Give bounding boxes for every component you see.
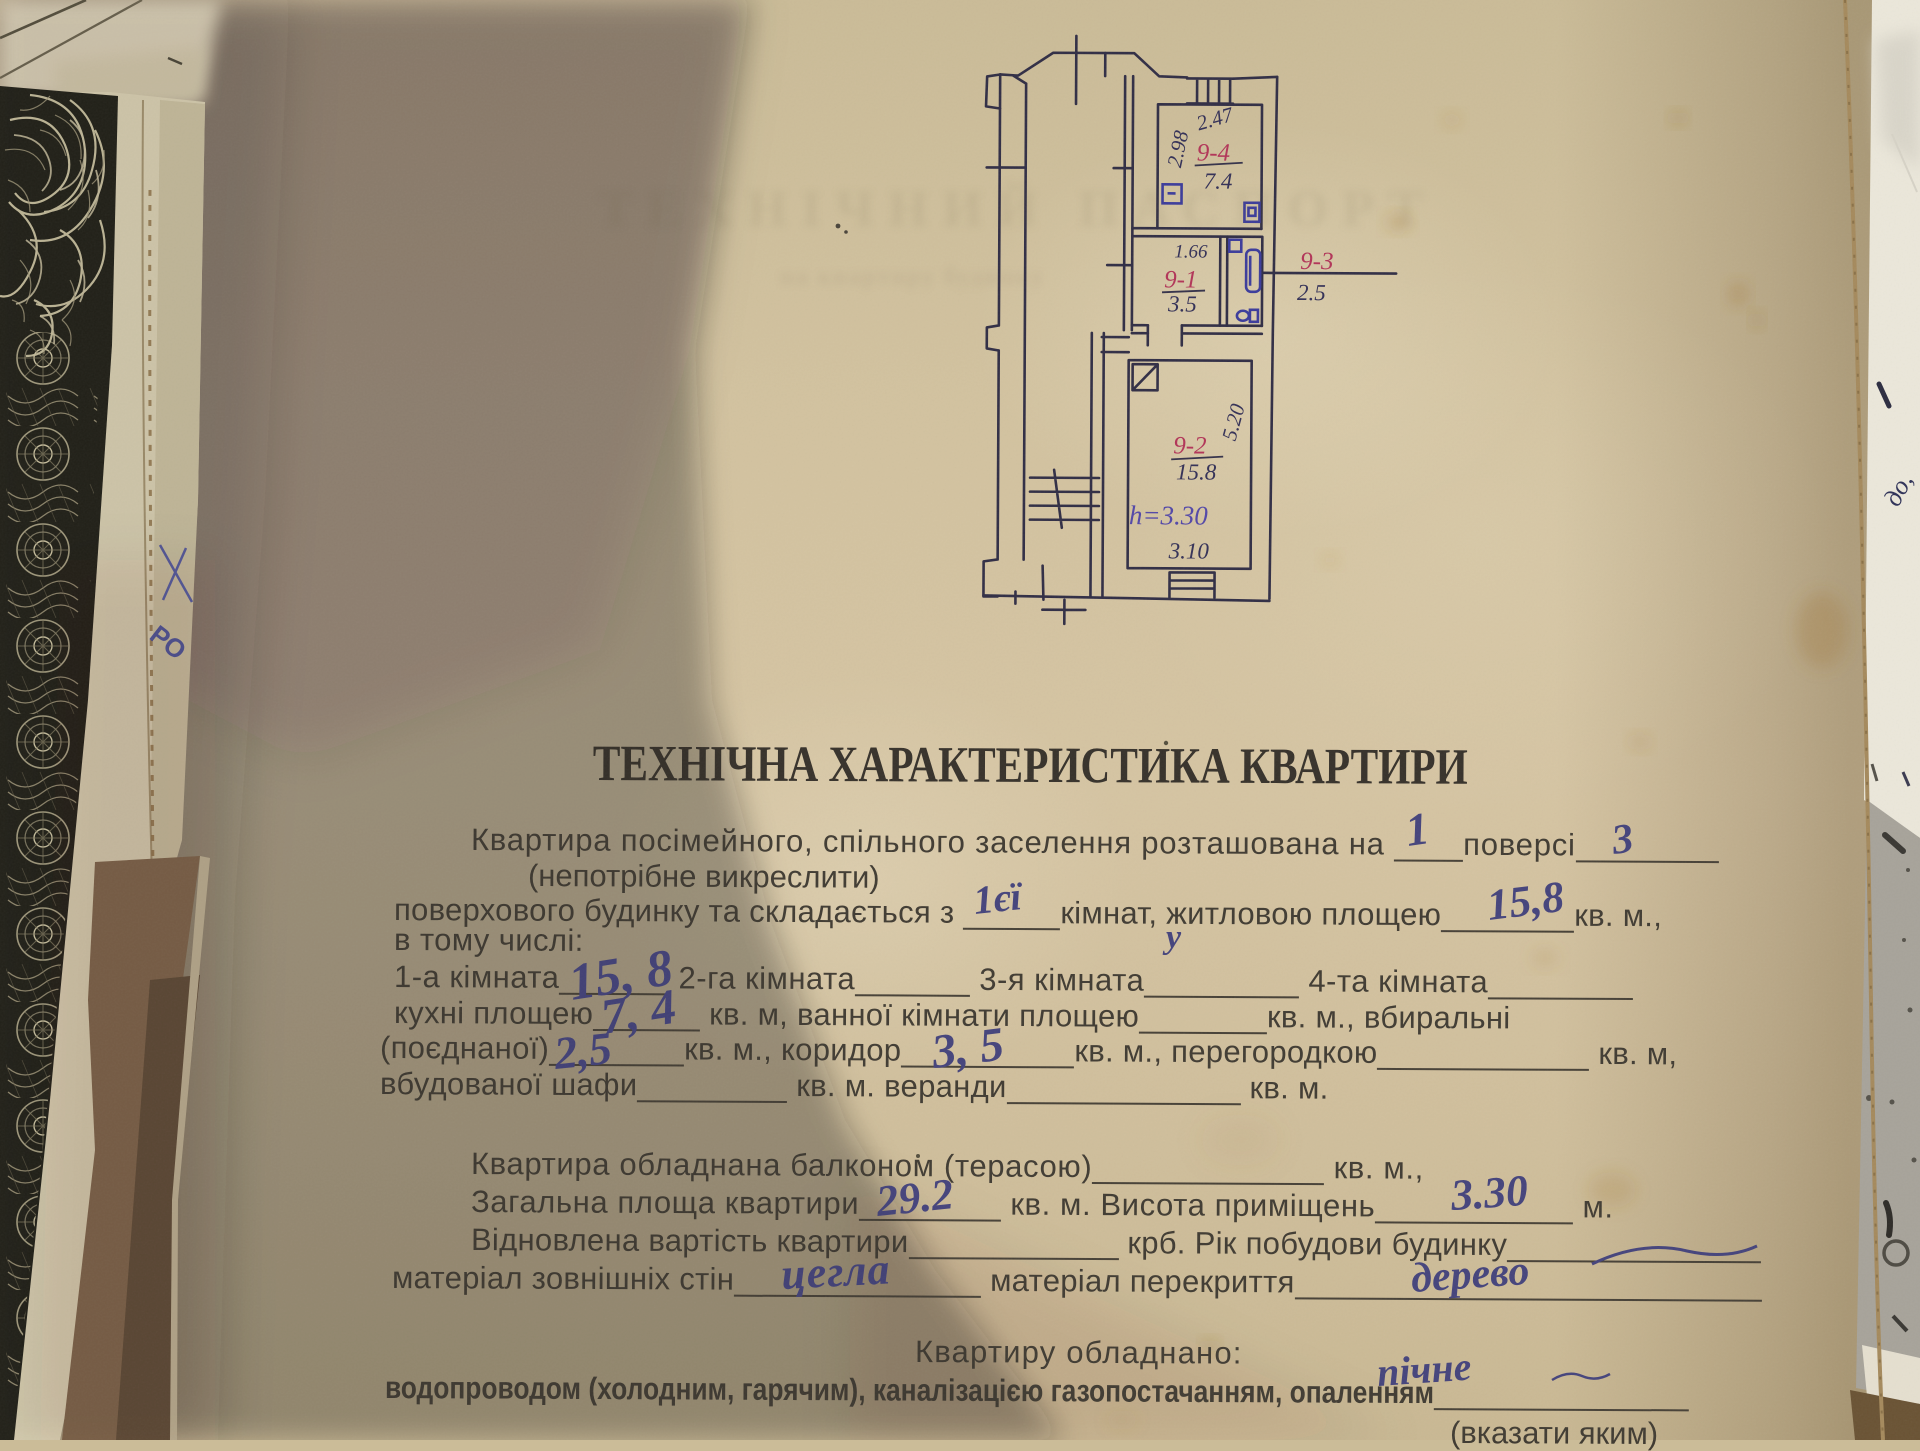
- svg-text:дерево: дерево: [1409, 1248, 1530, 1302]
- svg-text:3: 3: [1608, 815, 1636, 864]
- svg-text:2,5: 2,5: [551, 1022, 615, 1079]
- svg-text:29.2: 29.2: [873, 1169, 956, 1226]
- svg-text:15,8: 15,8: [1484, 872, 1566, 930]
- svg-text:пічне: пічне: [1375, 1344, 1472, 1395]
- svg-text:3.30: 3.30: [1448, 1166, 1529, 1220]
- svg-text:у: у: [1162, 919, 1182, 956]
- svg-text:1: 1: [1402, 802, 1432, 856]
- svg-text:цегла: цегла: [780, 1244, 892, 1299]
- svg-text:1єї: 1єї: [971, 873, 1026, 923]
- svg-text:3, 5: 3, 5: [928, 1018, 1007, 1080]
